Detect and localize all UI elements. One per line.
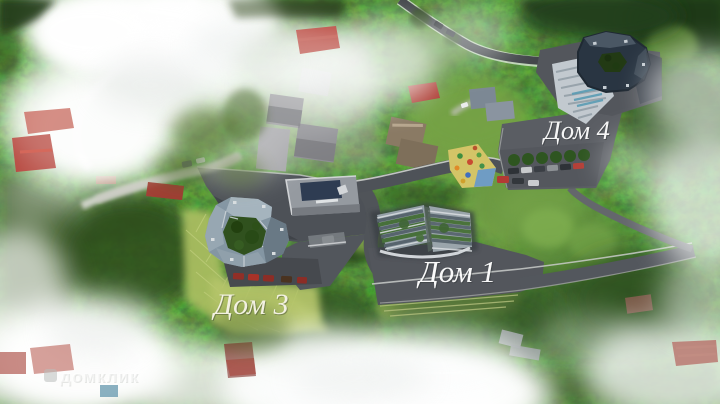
svg-text:Дом 4: Дом 4 [541,115,610,145]
svg-text:домклик: домклик [60,367,139,386]
svg-text:Дом 1: Дом 1 [416,254,496,289]
svg-text:Дом 3: Дом 3 [211,288,289,321]
